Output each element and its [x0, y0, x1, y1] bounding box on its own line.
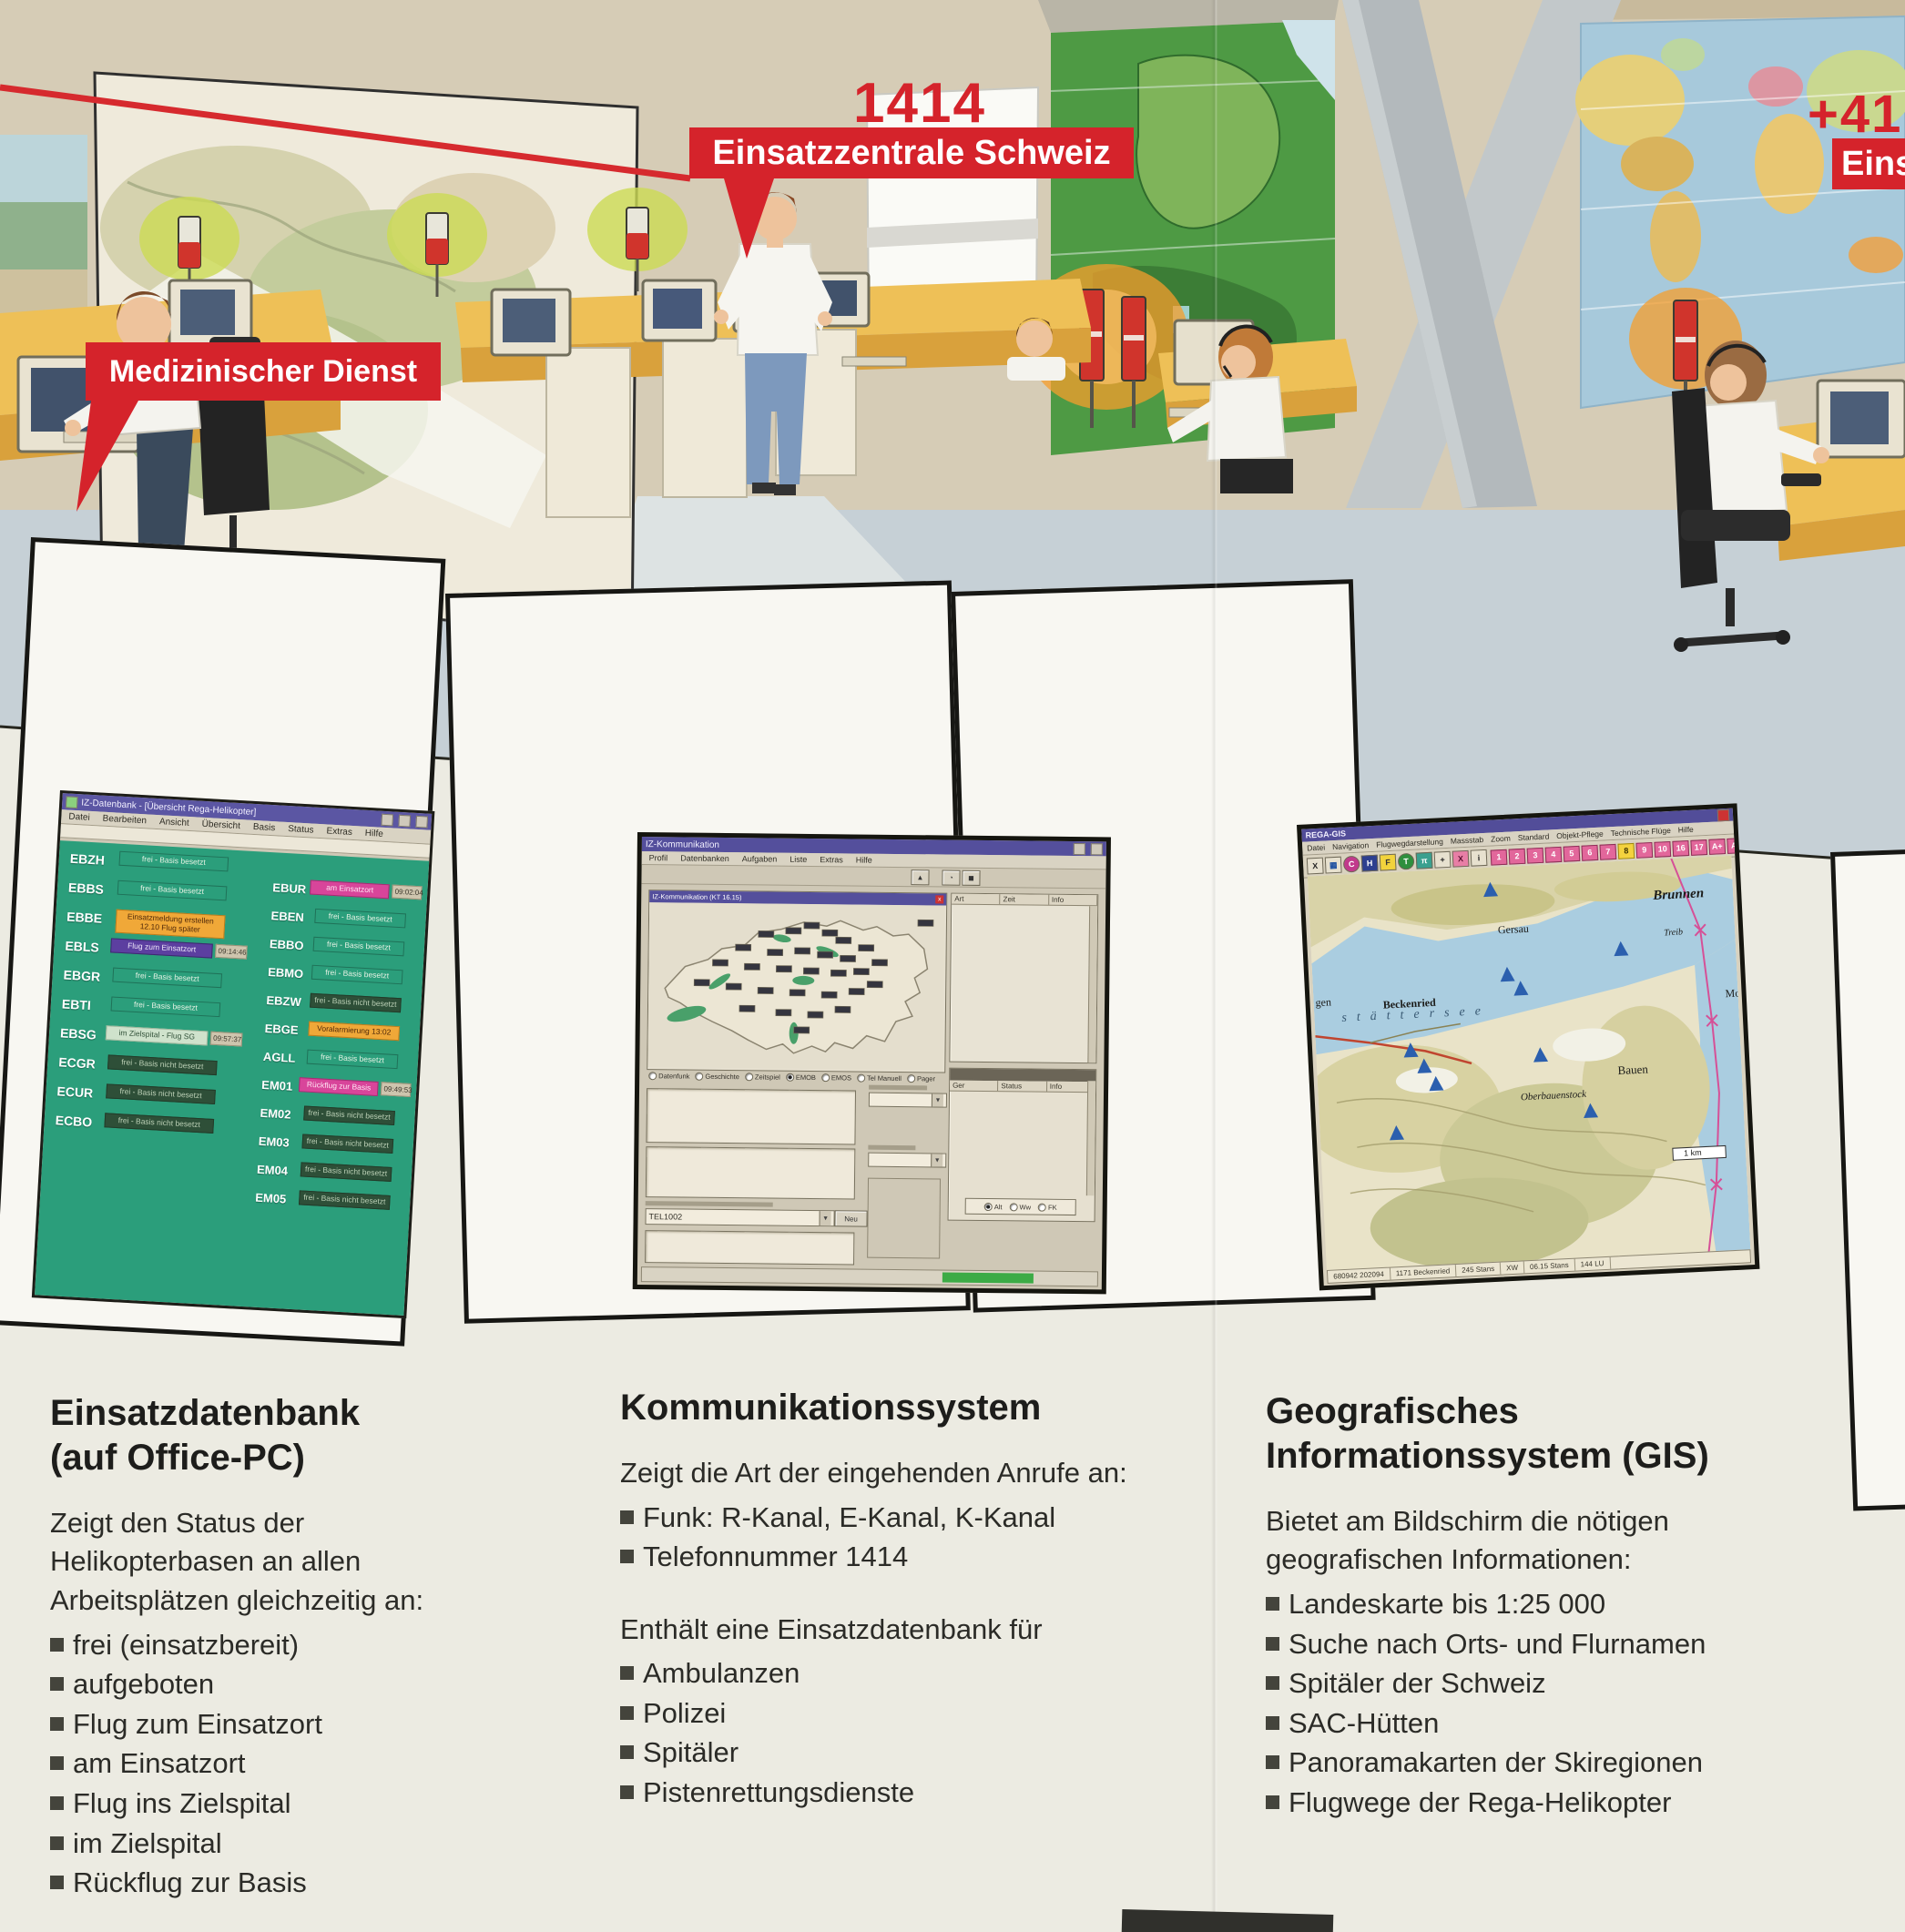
bullet-item: Polizei	[620, 1694, 1148, 1733]
bullet-square-icon	[50, 1677, 64, 1691]
comm-phone-value: TEL1002	[649, 1212, 683, 1221]
article-bullet-list: Funk: R-Kanal, E-Kanal, K-Kanal Telefonn…	[620, 1499, 1148, 1576]
base-status-row: EBGE Voralarmierung 13:02	[264, 1019, 414, 1052]
base-status-row: EBZH frei - Basis besetzt	[69, 849, 252, 883]
callout-medizinischer-dienst: Medizinischer Dienst	[86, 342, 441, 401]
bullet-text: Rückflug zur Basis	[73, 1864, 307, 1902]
bullet-square-icon	[1266, 1597, 1279, 1611]
bullet-item: Pistenrettungsdienste	[620, 1774, 1148, 1812]
device-column[interactable]: Ger	[950, 1081, 998, 1092]
bullet-item: frei (einsatzbereit)	[50, 1626, 478, 1664]
gis-tool-icon[interactable]: F	[1380, 854, 1397, 871]
comm-map-close-icon[interactable]: x	[935, 895, 943, 903]
comm-mid-frame	[867, 1178, 941, 1259]
base-code: EBUR	[272, 878, 311, 896]
base-status-row: EBTI frei - Basis besetzt	[61, 993, 244, 1028]
article-title: Kommunikationssystem	[620, 1386, 1148, 1430]
page-fold-crease	[1211, 0, 1217, 1932]
db-app-icon	[66, 796, 78, 808]
base-status-chip: frei - Basis besetzt	[311, 965, 403, 984]
base-status-chip: frei - Basis nicht besetzt	[106, 1083, 216, 1103]
bullet-item: Flugwege der Rega-Helikopter	[1266, 1784, 1776, 1822]
base-status-chip: frei - Basis besetzt	[307, 1050, 399, 1069]
bullet-text: im Zielspital	[73, 1825, 222, 1863]
base-status-time: 09:14:46	[215, 944, 248, 960]
comm-status-green-indicator	[942, 1273, 1034, 1284]
base-code: EBTI	[61, 993, 111, 1013]
bullet-text: Panoramakarten der Skiregionen	[1289, 1744, 1703, 1782]
gis-status-cell: 1171 Beckenried	[1391, 1265, 1457, 1280]
comm-toolbar-button-stop[interactable]: ◼	[962, 870, 980, 886]
comm-close-button[interactable]	[1091, 843, 1103, 855]
comm-toolbar-button-up[interactable]: ▲	[911, 869, 929, 885]
gis-status-cell: XW	[1501, 1261, 1524, 1274]
bullet-item: am Einsatzort	[50, 1744, 478, 1783]
comm-map-window-title: IZ-Kommunikation (KT 16.15)	[652, 892, 741, 901]
maplabel-bauen: Bauen	[1617, 1062, 1648, 1078]
base-status-row: EM02 frei - Basis nicht besetzt	[260, 1103, 410, 1136]
db-close-button[interactable]	[415, 815, 428, 828]
base-code: EBLS	[65, 936, 111, 956]
call-list-scrollbar[interactable]	[1087, 906, 1097, 1063]
comm-listbox-3[interactable]	[645, 1230, 854, 1265]
maplabel-beckenried: Beckenried	[1382, 996, 1436, 1012]
call-list-column[interactable]: Art	[952, 894, 1000, 905]
bullet-item: Funk: R-Kanal, E-Kanal, K-Kanal	[620, 1499, 1148, 1537]
bullet-item: Rückflug zur Basis	[50, 1864, 478, 1902]
brochure-page: 1414 Einsatzzentrale Schweiz Medizinisch…	[0, 0, 1905, 1932]
db-menu-item[interactable]: Übersicht	[201, 819, 240, 831]
device-column[interactable]: Status	[998, 1081, 1046, 1092]
mode-radio[interactable]: Ww	[1009, 1203, 1031, 1211]
call-type-radio[interactable]: Geschichte	[695, 1073, 739, 1082]
article-title: Geografisches	[1266, 1389, 1776, 1434]
base-status-chip: frei - Basis besetzt	[117, 880, 228, 900]
gis-menu-item[interactable]: Technische Flüge	[1610, 826, 1671, 838]
comm-menu-item[interactable]: Aufgaben	[742, 854, 778, 863]
base-status-row: EBBO frei - Basis besetzt	[269, 934, 419, 967]
base-code: EBGR	[63, 965, 113, 985]
gis-tool-icon[interactable]: T	[1398, 853, 1415, 870]
bullet-item: Flug zum Einsatzort	[50, 1705, 478, 1744]
base-code: EBGE	[264, 1019, 309, 1038]
base-code: ECBO	[55, 1110, 105, 1130]
comm-minimize-button[interactable]	[1074, 843, 1085, 855]
base-code: EBZW	[266, 991, 311, 1010]
gis-tool-icon[interactable]: ▦	[1325, 857, 1342, 874]
base-status-chip: frei - Basis nicht besetzt	[107, 1054, 218, 1074]
db-menu-item[interactable]: Bearbeiten	[102, 814, 147, 827]
gis-tool-icon[interactable]: π	[1416, 852, 1433, 869]
comm-toolbar-button-clock[interactable]: ◔	[942, 870, 960, 886]
gis-tool-icon[interactable]: X	[1452, 850, 1470, 868]
gis-status-cell: 144 LU	[1574, 1257, 1610, 1271]
mode-radio[interactable]: FK	[1038, 1203, 1057, 1211]
base-status-chip: frei - Basis besetzt	[118, 851, 229, 871]
comm-mode-box: AltWwFK	[965, 1198, 1076, 1215]
bullet-item: Spitäler	[620, 1734, 1148, 1772]
base-code: AGLL	[263, 1047, 308, 1066]
bullet-item: im Zielspital	[50, 1825, 478, 1863]
base-status-chip: Rückflug zur Basis	[299, 1077, 379, 1096]
article-bullet-list: Landeskarte bis 1:25 000 Suche nach Orts…	[1266, 1585, 1776, 1821]
base-status-row: EBUR am Einsatzort 09:02:04	[271, 878, 422, 910]
bullet-text: Spitäler	[643, 1734, 739, 1772]
callout-intl-label: Eins	[1841, 145, 1905, 184]
gis-menu-item[interactable]: Hilfe	[1678, 825, 1694, 835]
communication-screen: IZ-Kommunikation ProfilDatenbankenAufgab…	[633, 832, 1111, 1294]
comm-menu-item[interactable]: Datenbanken	[680, 853, 729, 863]
base-code: EM01	[261, 1075, 300, 1093]
base-code: EBMO	[268, 962, 312, 981]
comm-mid-combo-1[interactable]: ▼	[869, 1093, 947, 1108]
article-bullet-list-2: Ambulanzen Polizei Spitäler Pistenrettun…	[620, 1654, 1148, 1811]
base-status-row: ECGR frei - Basis nicht besetzt	[57, 1052, 240, 1086]
call-list-column[interactable]: Zeit	[1001, 894, 1049, 905]
maplabel-gersau: Gersau	[1498, 922, 1530, 938]
article-einsatzdatenbank: Einsatzdatenbank (auf Office-PC) Zeigt d…	[50, 1391, 478, 1904]
comm-menu-item[interactable]: Hilfe	[856, 856, 872, 865]
comm-map-window: IZ-Kommunikation (KT 16.15) x	[647, 890, 947, 1073]
article-title-line2: Informationssystem (GIS)	[1266, 1434, 1776, 1479]
bullet-text: Suche nach Orts- und Flurnamen	[1289, 1625, 1706, 1663]
base-status-time: 09:57:37	[210, 1032, 243, 1047]
base-status-chip: frei - Basis nicht besetzt	[301, 1162, 392, 1181]
article-kommunikationssystem: Kommunikationssystem Zeigt die Art der e…	[620, 1386, 1148, 1814]
callout-intl-partial: Eins	[1832, 138, 1905, 189]
bullet-text: aufgeboten	[73, 1665, 214, 1703]
db-menu-item[interactable]: Extras	[326, 826, 352, 838]
page-bottom-fold	[1122, 1909, 1334, 1932]
article-title-line2: (auf Office-PC)	[50, 1436, 478, 1480]
bullet-square-icon	[620, 1745, 634, 1759]
call-list-column[interactable]: Info	[1049, 895, 1097, 906]
bullet-text: Spitäler der Schweiz	[1289, 1664, 1546, 1703]
bullet-square-icon	[1266, 1637, 1279, 1651]
chevron-down-icon[interactable]: ▼	[819, 1211, 830, 1225]
gis-scale-button[interactable]: 1	[1491, 849, 1508, 865]
article-title: Einsatzdatenbank	[50, 1391, 478, 1436]
bullet-square-icon	[620, 1785, 634, 1799]
bullet-square-icon	[620, 1510, 634, 1524]
base-code: EM02	[260, 1103, 304, 1123]
bullet-item: aufgeboten	[50, 1665, 478, 1703]
gis-menu-item[interactable]: Navigation	[1332, 840, 1370, 851]
bullet-square-icon	[50, 1756, 64, 1770]
db-menu-item[interactable]: Datei	[68, 812, 90, 823]
gis-status-cell: 06.15 Stans	[1524, 1259, 1575, 1274]
comm-mid-label-1	[869, 1085, 927, 1091]
base-status-chip: frei - Basis nicht besetzt	[303, 1106, 395, 1125]
gis-scale-button[interactable]: 6	[1581, 844, 1598, 860]
article-intro: Zeigt den Status der Helikopterbasen an …	[50, 1504, 478, 1621]
base-status-row: EM03 frei - Basis nicht besetzt	[258, 1132, 408, 1164]
gis-scale-button[interactable]: 7	[1599, 843, 1616, 859]
bullet-item: Telefonnummer 1414	[620, 1538, 1148, 1576]
base-code: EBSG	[60, 1022, 107, 1042]
comm-menu-item[interactable]: Extras	[820, 855, 843, 864]
base-status-row: AGLL frei - Basis besetzt	[262, 1047, 413, 1080]
base-status-row: EBLS Flug zum Einsatzort 09:14:46	[65, 936, 248, 971]
comm-phone-label	[646, 1201, 773, 1206]
gis-scale-button[interactable]: 9	[1635, 841, 1653, 858]
db-minimize-button[interactable]	[381, 813, 393, 826]
callout-einsatzzentrale: Einsatzzentrale Schweiz	[689, 127, 1134, 178]
article-intro: Bietet am Bildschirm die nötigen geograf…	[1266, 1502, 1776, 1581]
bullet-text: Landeskarte bis 1:25 000	[1289, 1585, 1605, 1623]
gis-menu-item[interactable]: Objekt-Pflege	[1556, 829, 1604, 841]
gis-scale-button[interactable]: 10	[1654, 840, 1671, 857]
gis-menu-item[interactable]: Zoom	[1491, 834, 1511, 844]
mode-radio[interactable]: Alt	[984, 1203, 1003, 1211]
comm-statusbar	[641, 1266, 1098, 1286]
bullet-square-icon	[50, 1638, 64, 1652]
bullet-square-icon	[50, 1876, 64, 1889]
gis-scale-button[interactable]: 5	[1563, 845, 1580, 861]
gis-scale-button[interactable]: A+	[1708, 839, 1726, 855]
gis-menu-item[interactable]: Standard	[1518, 831, 1550, 842]
base-status-row: EBBS frei - Basis besetzt	[67, 878, 250, 912]
gis-map-view[interactable]: gen stättersee Gersau Brunnen Treib Beck…	[1308, 856, 1751, 1271]
bullet-text: am Einsatzort	[73, 1744, 246, 1783]
gis-tool-icon[interactable]: +	[1434, 851, 1452, 869]
base-status-time: 09:02:04	[392, 885, 423, 900]
bullet-square-icon	[1266, 1676, 1279, 1690]
callout-einsatzzentrale-label: Einsatzzentrale Schweiz	[712, 134, 1110, 173]
database-screen: IZ-Datenbank - [Übersicht Rega-Helikopte…	[32, 790, 435, 1318]
article-intro: Zeigt die Art der eingehenden Anrufe an:	[620, 1454, 1148, 1493]
bullet-square-icon	[1266, 1755, 1279, 1769]
bullet-text: frei (einsatzbereit)	[73, 1626, 299, 1664]
bullet-square-icon	[50, 1717, 64, 1731]
bullet-text: Flug ins Zielspital	[73, 1785, 290, 1823]
base-status-chip: Flug zum Einsatzort	[110, 938, 213, 958]
map-scale-label: 1 km	[1684, 1148, 1702, 1158]
intl-number-partial: +41	[1808, 84, 1902, 145]
bullet-item: Ambulanzen	[620, 1654, 1148, 1693]
db-menu-item[interactable]: Ansicht	[159, 817, 189, 829]
base-status-row: EM05 frei - Basis nicht besetzt	[254, 1188, 404, 1221]
base-code: EBEN	[270, 906, 315, 925]
gis-tool-icon[interactable]: i	[1471, 849, 1488, 867]
gis-status-cell: 680942 202094	[1328, 1268, 1391, 1283]
comm-new-button-label: Neu	[844, 1215, 858, 1223]
maplabel-treib: Treib	[1664, 927, 1683, 938]
comm-phone-combo[interactable]: TEL1002 ▼	[645, 1208, 834, 1226]
gis-status-cell: 245 Stans	[1456, 1263, 1502, 1276]
db-right-column: EBUR am Einsatzort 09:02:04 EBEN frei - …	[254, 878, 422, 1221]
article-bullet-list: frei (einsatzbereit) aufgeboten Flug zum…	[50, 1626, 478, 1902]
bullet-square-icon	[620, 1550, 634, 1563]
comm-mode-radios: AltWwFK	[984, 1203, 1057, 1212]
base-status-chip: am Einsatzort	[310, 880, 390, 900]
gis-scale-button[interactable]: 16	[1672, 839, 1689, 856]
bullet-text: Funk: R-Kanal, E-Kanal, K-Kanal	[643, 1499, 1055, 1537]
comm-toolbar: ▲ ◔ ◼	[641, 865, 1105, 889]
bullet-item: Flug ins Zielspital	[50, 1785, 478, 1823]
bullet-square-icon	[50, 1836, 64, 1850]
bullet-text: Pistenrettungsdienste	[643, 1774, 914, 1812]
gis-tool-icon[interactable]: X	[1307, 858, 1324, 875]
base-status-row: ECUR frei - Basis nicht besetzt	[56, 1081, 239, 1115]
article-intro-2: Enthält eine Einsatzdatenbank für	[620, 1611, 1148, 1650]
gis-scale-button[interactable]: 17	[1690, 839, 1707, 856]
bullet-square-icon	[1266, 1716, 1279, 1730]
call-type-radio[interactable]: Tel Manuell	[857, 1074, 902, 1083]
bullet-text: Telefonnummer 1414	[643, 1538, 908, 1576]
bullet-square-icon	[1266, 1795, 1279, 1809]
base-code: EBBO	[270, 934, 314, 953]
call-type-radio[interactable]: Datenfunk	[648, 1072, 689, 1080]
bullet-square-icon	[620, 1706, 634, 1720]
gis-window-title: REGA-GIS	[1305, 829, 1346, 839]
callout-medical-label: Medizinischer Dienst	[109, 354, 417, 390]
base-status-chip: frei - Basis besetzt	[111, 997, 221, 1017]
base-status-chip: Voralarmierung 13:02	[308, 1022, 400, 1041]
maplabel-mo: Mo	[1725, 986, 1740, 1001]
db-left-column: EBZH frei - Basis besetzt EBBS frei - Ba…	[55, 849, 252, 1145]
gis-menu-item[interactable]: Flugwegdarstellung	[1376, 837, 1443, 849]
comm-call-list: ArtZeitInfo	[949, 893, 1098, 1064]
gis-menu-item[interactable]: Datei	[1307, 843, 1325, 853]
bullet-text: Polizei	[643, 1694, 726, 1733]
bullet-text: SAC-Hütten	[1289, 1704, 1439, 1743]
gis-tool-icon[interactable]: H	[1361, 855, 1379, 872]
comm-window-title: IZ-Kommunikation	[646, 839, 719, 850]
base-status-chip: frei - Basis nicht besetzt	[301, 1134, 393, 1153]
base-status-row: EBZW frei - Basis nicht besetzt	[266, 991, 416, 1023]
base-status-row: EBGR frei - Basis besetzt	[63, 965, 246, 1000]
article-gis: Geografisches Informationssystem (GIS) B…	[1266, 1389, 1776, 1823]
gis-scale-button[interactable]: 8	[1617, 842, 1635, 859]
base-status-chip: Einsatzmeldung erstellen 12.10 Flug spät…	[115, 910, 225, 939]
bullet-text: Flug zum Einsatzort	[73, 1705, 322, 1744]
call-type-radio[interactable]: EMOS	[821, 1073, 851, 1082]
call-type-radio[interactable]: EMOB	[786, 1073, 816, 1082]
comm-mid-combo-2[interactable]: ▼	[868, 1153, 946, 1168]
chevron-down-icon[interactable]: ▼	[932, 1093, 943, 1106]
bullet-item: Panoramakarten der Skiregionen	[1266, 1744, 1776, 1782]
comm-menu-item[interactable]: Profil	[649, 853, 668, 862]
base-code: ECUR	[56, 1081, 107, 1101]
bullet-item: SAC-Hütten	[1266, 1704, 1776, 1743]
comm-listbox-1[interactable]	[646, 1088, 856, 1144]
comm-call-list-header: ArtZeitInfo	[952, 894, 1097, 907]
device-list-scrollbar[interactable]	[1086, 1081, 1095, 1195]
emergency-number-1414: 1414	[701, 71, 1138, 136]
bullet-item: Suche nach Orts- und Flurnamen	[1266, 1625, 1776, 1663]
comm-menu-item[interactable]: Liste	[790, 855, 807, 864]
gis-tool-icon[interactable]: C	[1343, 856, 1360, 873]
switzerland-call-map	[647, 902, 944, 1070]
base-status-chip: frei - Basis nicht besetzt	[299, 1190, 391, 1209]
base-code: EM04	[257, 1160, 301, 1179]
base-status-row: EBSG im Zielspital - Flug SG 09:57:37	[59, 1022, 242, 1057]
chevron-down-icon[interactable]: ▼	[931, 1154, 942, 1166]
maplabel-brunnen: Brunnen	[1653, 886, 1705, 904]
base-status-chip: frei - Basis nicht besetzt	[310, 993, 402, 1012]
comm-listbox-2[interactable]	[646, 1146, 856, 1199]
comm-new-button[interactable]: Neu	[834, 1210, 867, 1226]
base-status-chip: frei - Basis besetzt	[112, 968, 222, 988]
base-status-row: EBBE Einsatzmeldung erstellen 12.10 Flug…	[66, 907, 249, 941]
db-menu-item[interactable]: Basis	[253, 822, 276, 833]
maplabel-gen: gen	[1315, 995, 1331, 1010]
topographic-map	[1308, 856, 1751, 1271]
db-menu-item[interactable]: Hilfe	[365, 829, 384, 839]
gis-scale-button[interactable]: 4	[1545, 846, 1563, 862]
base-code: EBBS	[68, 878, 118, 898]
comm-device-header: GerStatusInfo	[950, 1081, 1095, 1093]
comm-mid-label-2	[868, 1145, 915, 1151]
comm-device-window: GerStatusInfo AltWwFK	[948, 1068, 1097, 1223]
base-code: EBBE	[66, 907, 117, 927]
screenshot-card-partial-right	[1830, 847, 1905, 1510]
base-status-row: EM04 frei - Basis nicht besetzt	[256, 1160, 406, 1193]
base-code: EM05	[255, 1188, 300, 1207]
base-status-chip: frei - Basis besetzt	[313, 937, 405, 956]
db-menu-item[interactable]: Status	[288, 824, 314, 836]
call-type-radio[interactable]: Pager	[907, 1074, 935, 1083]
gis-menu-item[interactable]: Massstab	[1451, 835, 1484, 846]
db-maximize-button[interactable]	[398, 814, 411, 827]
call-type-radio[interactable]: Zeitspiel	[745, 1073, 780, 1081]
base-status-chip: frei - Basis nicht besetzt	[104, 1113, 214, 1133]
base-code: EM03	[258, 1132, 302, 1151]
base-status-row: EM01 Rückflug zur Basis 09:49:53	[260, 1075, 411, 1108]
base-status-chip: im Zielspital - Flug SG	[106, 1025, 209, 1045]
base-status-row: EBEN frei - Basis besetzt	[270, 906, 421, 939]
bullet-item: Spitäler der Schweiz	[1266, 1664, 1776, 1703]
base-status-row: EBMO frei - Basis besetzt	[267, 962, 417, 995]
db-status-board: EBZH frei - Basis besetzt EBBS frei - Ba…	[35, 840, 429, 1316]
base-status-row: ECBO frei - Basis nicht besetzt	[55, 1110, 238, 1144]
base-status-chip: frei - Basis besetzt	[314, 909, 406, 928]
gis-scale-button[interactable]: 3	[1527, 847, 1544, 863]
bullet-text: Flugwege der Rega-Helikopter	[1289, 1784, 1671, 1822]
gis-scale-button[interactable]: 2	[1509, 848, 1526, 864]
gis-close-button[interactable]	[1717, 808, 1730, 821]
bullet-item: Landeskarte bis 1:25 000	[1266, 1585, 1776, 1623]
bullet-text: Ambulanzen	[643, 1654, 800, 1693]
bullet-square-icon	[620, 1666, 634, 1680]
base-code: ECGR	[58, 1052, 108, 1072]
base-status-time: 09:49:53	[381, 1082, 412, 1097]
gis-screen: REGA-GIS DateiNavigationFlugwegdarstellu…	[1297, 803, 1759, 1290]
base-code: EBZH	[69, 849, 119, 869]
bullet-square-icon	[50, 1796, 64, 1810]
